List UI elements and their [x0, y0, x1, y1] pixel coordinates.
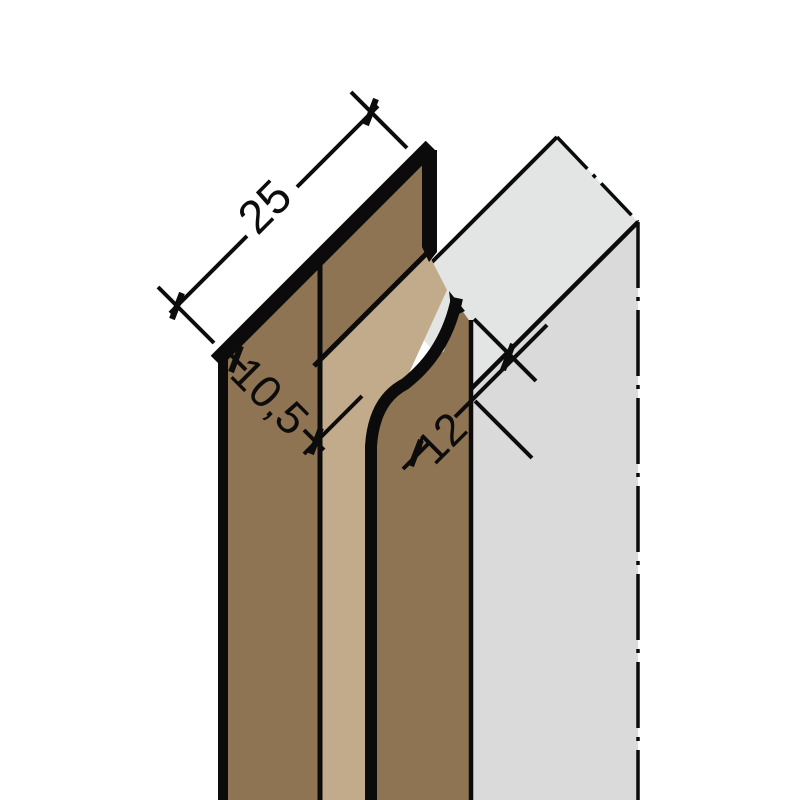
profile-isometric-canvas: 25 10,5 12	[0, 0, 800, 800]
joint-profile-drawing: 25 10,5 12	[0, 0, 800, 800]
profile-back-flange-right-edge	[422, 150, 437, 262]
